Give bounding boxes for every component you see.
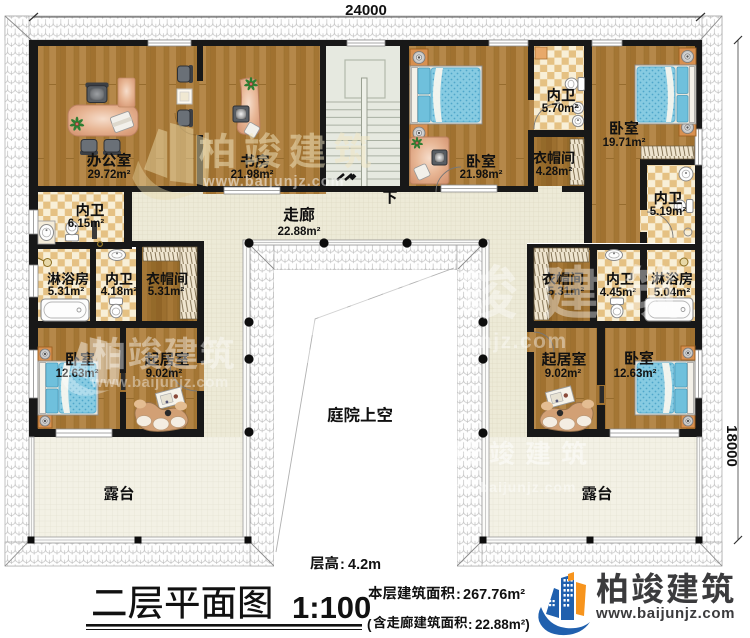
svg-text:12.63m²: 12.63m² — [614, 368, 657, 380]
svg-text:24000: 24000 — [345, 2, 387, 19]
svg-text:www.baijunjz.com: www.baijunjz.com — [90, 374, 228, 391]
svg-text:5.19m²: 5.19m² — [650, 206, 687, 218]
svg-text:(: ( — [367, 617, 372, 632]
svg-text::: : — [468, 617, 473, 632]
svg-text:5.31m²: 5.31m² — [148, 286, 185, 298]
svg-text:22.88m²: 22.88m² — [278, 226, 321, 238]
svg-text:1:100: 1:100 — [292, 590, 371, 625]
svg-text:5.70m²: 5.70m² — [542, 103, 579, 115]
svg-text:29.72m²: 29.72m² — [88, 169, 131, 181]
svg-text:18000: 18000 — [723, 425, 740, 467]
svg-text:4.2m: 4.2m — [348, 557, 381, 573]
svg-text:www.baijunjz.com: www.baijunjz.com — [202, 174, 344, 190]
svg-text:4.28m²: 4.28m² — [536, 166, 573, 178]
svg-text:19.71m²: 19.71m² — [603, 137, 646, 149]
svg-text::: : — [340, 557, 345, 573]
svg-text:267.76m²: 267.76m² — [463, 587, 525, 603]
svg-text:4.18m²: 4.18m² — [101, 286, 138, 298]
svg-text:22.88m²): 22.88m²) — [475, 617, 530, 632]
svg-text:21.98m²: 21.98m² — [460, 169, 503, 181]
svg-text:5.31m²: 5.31m² — [48, 286, 85, 298]
svg-text::: : — [456, 587, 461, 603]
svg-text:9.02m²: 9.02m² — [545, 368, 582, 380]
svg-text:6.15m²: 6.15m² — [68, 218, 105, 230]
svg-text:www.baijunjz.com: www.baijunjz.com — [595, 605, 735, 622]
svg-text:www.baijunjz.com: www.baijunjz.com — [361, 330, 567, 353]
svg-text:www.baijunjz.com: www.baijunjz.com — [439, 479, 577, 495]
